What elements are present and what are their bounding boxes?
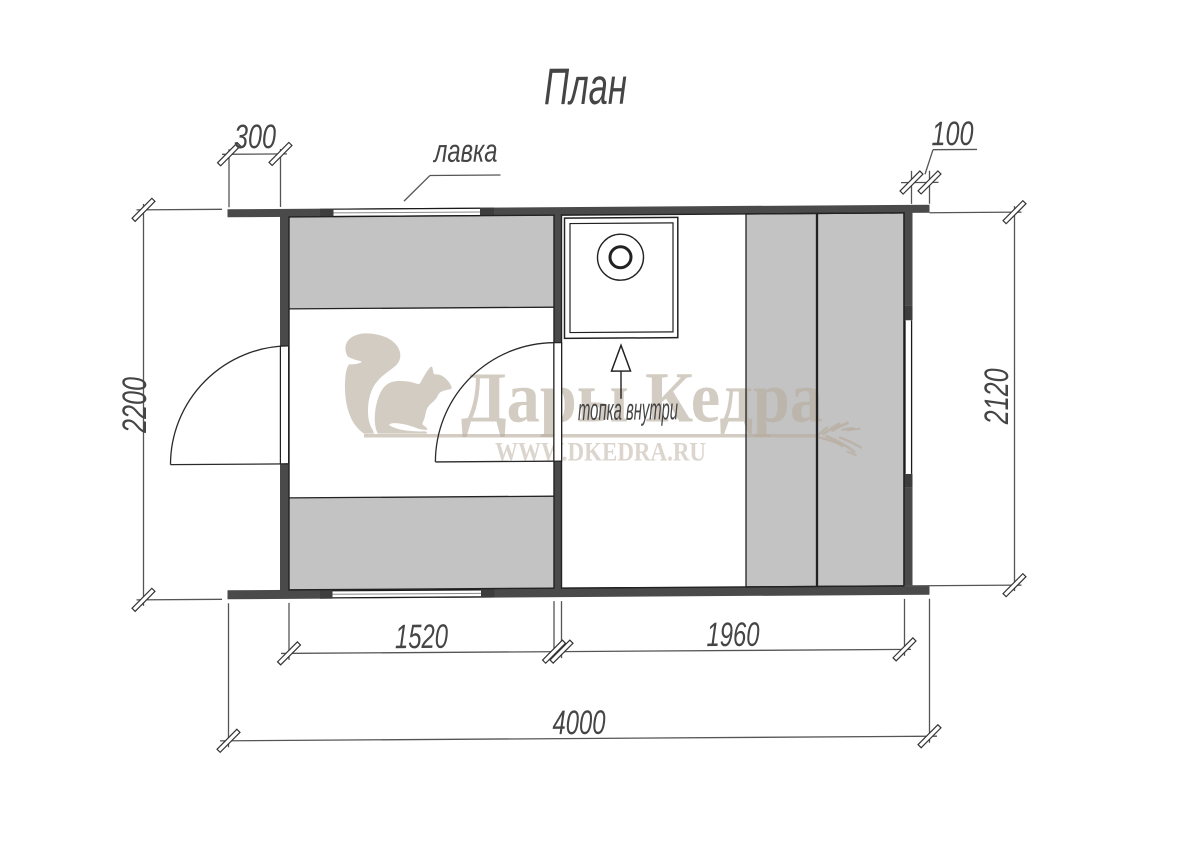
svg-text:WWW.DKEDRA.RU: WWW.DKEDRA.RU bbox=[495, 438, 706, 467]
svg-text:лавка: лавка bbox=[433, 133, 498, 169]
svg-text:1520: 1520 bbox=[395, 618, 448, 656]
svg-text:План: План bbox=[544, 57, 627, 116]
svg-text:4000: 4000 bbox=[553, 704, 606, 742]
svg-text:1960: 1960 bbox=[707, 616, 760, 654]
svg-text:2120: 2120 bbox=[978, 368, 1016, 425]
svg-text:2200: 2200 bbox=[116, 377, 154, 434]
svg-text:100: 100 bbox=[932, 115, 974, 153]
svg-text:топка внутри: топка внутри bbox=[578, 393, 678, 427]
svg-text:300: 300 bbox=[234, 118, 276, 156]
